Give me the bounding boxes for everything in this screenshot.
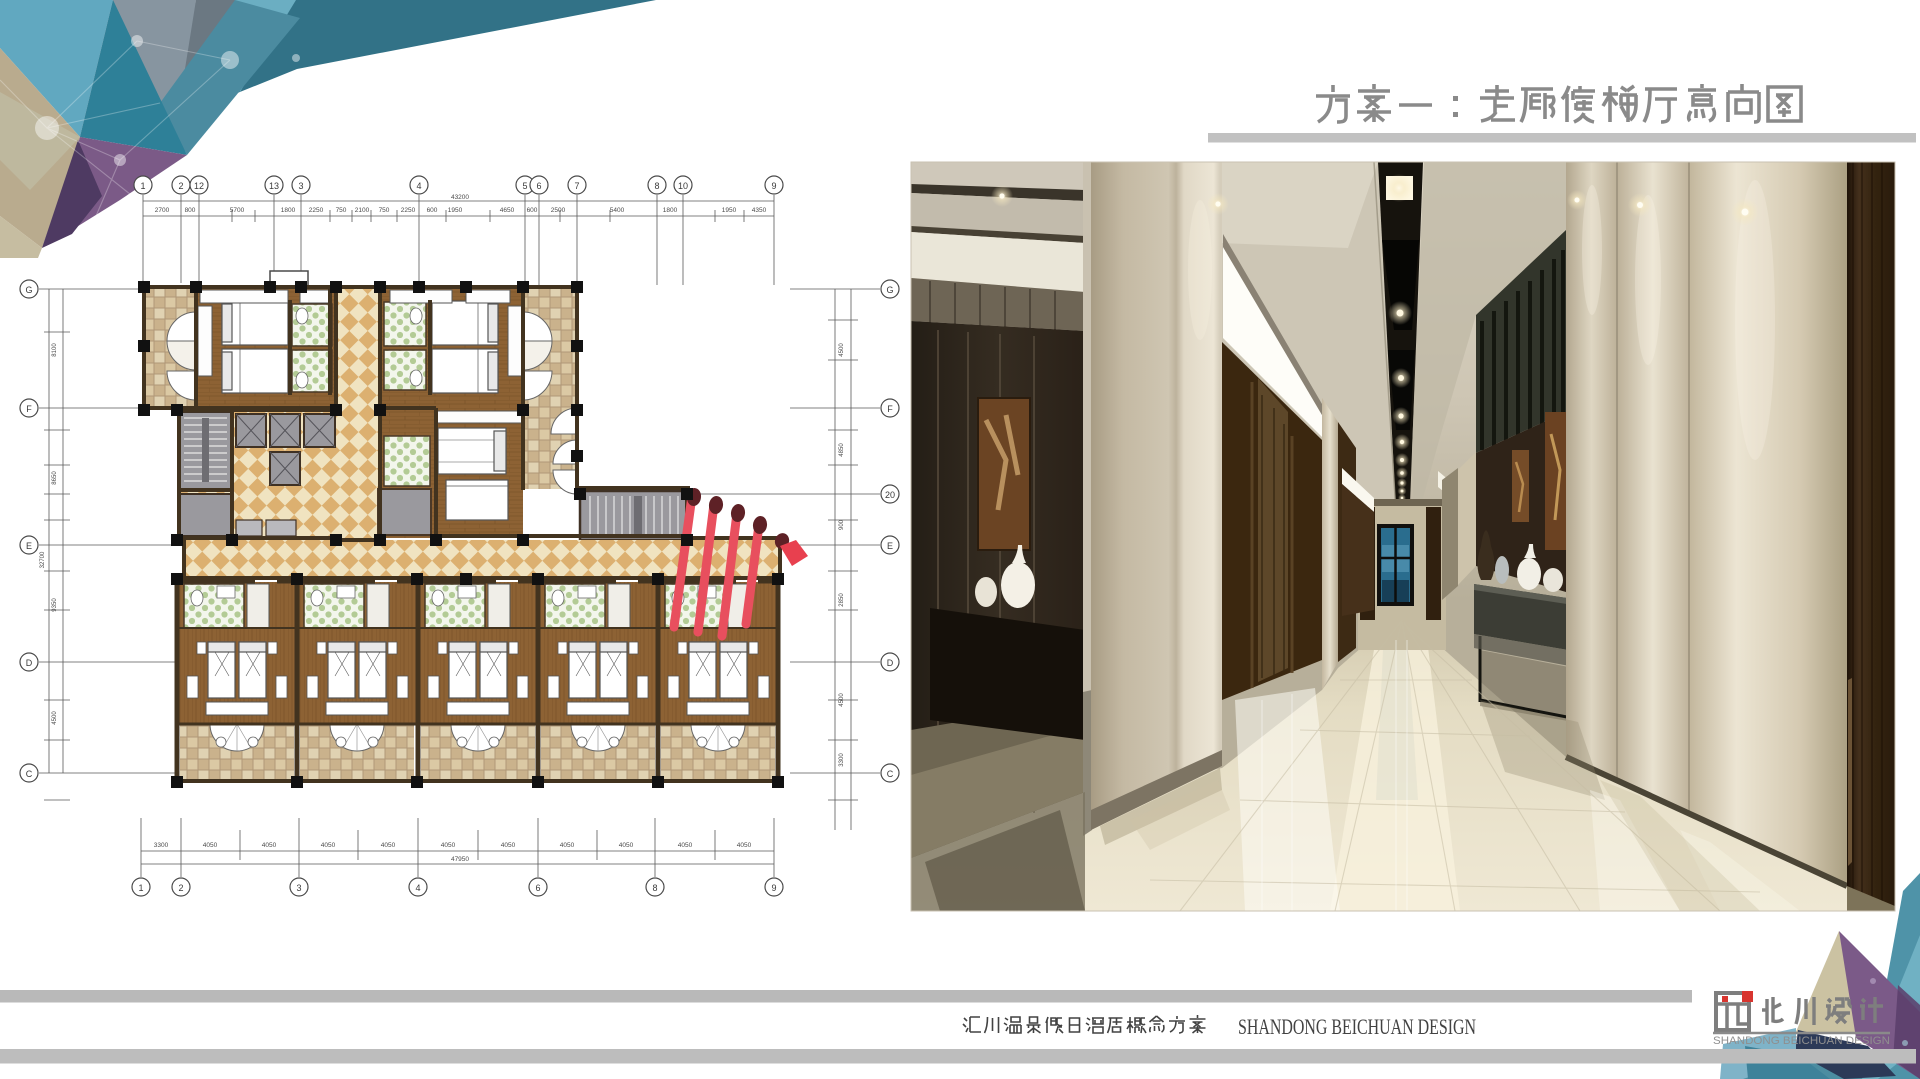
svg-text:3: 3 [298, 181, 303, 191]
svg-text:4: 4 [416, 181, 421, 191]
svg-text:F: F [26, 404, 32, 414]
svg-text:SHANDONG BEICHUAN DESIGN: SHANDONG BEICHUAN DESIGN [1713, 1035, 1890, 1047]
svg-text:4050: 4050 [441, 842, 456, 849]
svg-text:C: C [26, 769, 33, 779]
svg-text:8: 8 [654, 181, 659, 191]
svg-text:2850: 2850 [839, 593, 845, 607]
svg-text:4050: 4050 [203, 842, 218, 849]
svg-text:4050: 4050 [262, 842, 277, 849]
svg-text:800: 800 [185, 207, 196, 214]
svg-text:G: G [25, 285, 32, 295]
svg-text:10: 10 [678, 181, 688, 191]
svg-text:G: G [886, 285, 893, 295]
svg-text:3: 3 [296, 883, 301, 893]
svg-text:E: E [887, 541, 893, 551]
svg-text:6: 6 [535, 883, 540, 893]
svg-text:4050: 4050 [619, 842, 634, 849]
svg-text:4350: 4350 [752, 207, 767, 214]
svg-text:1: 1 [140, 181, 145, 191]
svg-text:8650: 8650 [52, 471, 58, 485]
svg-text:4850: 4850 [839, 443, 845, 457]
svg-text:4: 4 [415, 883, 420, 893]
svg-text:4050: 4050 [501, 842, 516, 849]
svg-text:C: C [887, 769, 894, 779]
svg-text:2500: 2500 [551, 207, 566, 214]
svg-text:4050: 4050 [560, 842, 575, 849]
svg-text:9350: 9350 [52, 598, 58, 612]
svg-text:6: 6 [536, 181, 541, 191]
svg-text:5400: 5400 [610, 207, 625, 214]
svg-text:1950: 1950 [722, 207, 737, 214]
svg-text:47950: 47950 [451, 856, 469, 863]
svg-text:1: 1 [138, 883, 143, 893]
svg-text:1800: 1800 [281, 207, 296, 214]
svg-text:750: 750 [379, 207, 390, 214]
svg-text:4050: 4050 [678, 842, 693, 849]
svg-text:3300: 3300 [154, 842, 169, 849]
svg-text:4050: 4050 [381, 842, 396, 849]
svg-text:SHANDONG BEICHUAN DESIGN: SHANDONG BEICHUAN DESIGN [1238, 1014, 1476, 1039]
svg-text:3300: 3300 [839, 753, 845, 767]
svg-text:4500: 4500 [52, 711, 58, 725]
svg-text:2: 2 [178, 883, 183, 893]
svg-text:9: 9 [771, 883, 776, 893]
svg-text:5: 5 [522, 181, 527, 191]
svg-text:2100: 2100 [355, 207, 370, 214]
svg-text:9: 9 [771, 181, 776, 191]
svg-text:8100: 8100 [52, 343, 58, 357]
svg-text:750: 750 [336, 207, 347, 214]
svg-text:43200: 43200 [451, 194, 469, 201]
svg-text:2250: 2250 [309, 207, 324, 214]
svg-text:4650: 4650 [500, 207, 515, 214]
svg-text:F: F [887, 404, 893, 414]
svg-text:4050: 4050 [737, 842, 752, 849]
svg-text:4050: 4050 [321, 842, 336, 849]
svg-text:12: 12 [194, 181, 204, 191]
svg-text:2: 2 [178, 181, 183, 191]
svg-text:2700: 2700 [155, 207, 170, 214]
svg-text:32700: 32700 [40, 551, 46, 568]
svg-text:1950: 1950 [448, 207, 463, 214]
svg-text:D: D [887, 658, 894, 668]
svg-text:7: 7 [574, 181, 579, 191]
svg-text:8: 8 [652, 883, 657, 893]
svg-text:D: D [26, 658, 33, 668]
svg-text:20: 20 [885, 490, 895, 500]
svg-text:4500: 4500 [839, 693, 845, 707]
svg-text:2250: 2250 [401, 207, 416, 214]
svg-text:4500: 4500 [839, 343, 845, 357]
svg-text:1800: 1800 [663, 207, 678, 214]
svg-text:E: E [26, 541, 32, 551]
svg-text:600: 600 [427, 207, 438, 214]
svg-text:900: 900 [839, 519, 845, 530]
svg-text:13: 13 [269, 181, 279, 191]
svg-text:5700: 5700 [230, 207, 245, 214]
svg-text:600: 600 [527, 207, 538, 214]
